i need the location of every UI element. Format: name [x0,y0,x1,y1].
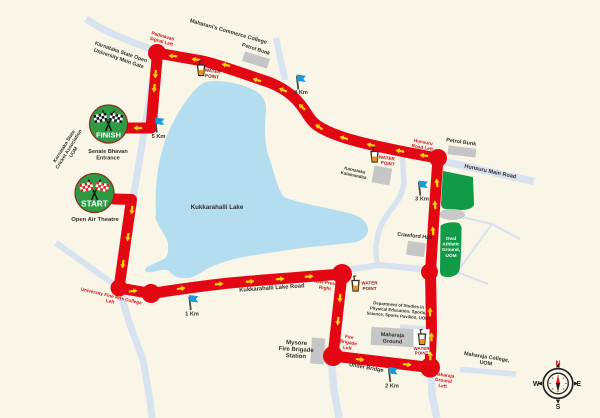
svg-text:FINISH: FINISH [96,131,121,140]
svg-text:2 Km: 2 Km [385,384,399,390]
svg-text:Senate Bhavan: Senate Bhavan [88,149,128,155]
svg-text:5 Km: 5 Km [152,134,166,140]
svg-text:Ground: Ground [383,338,403,345]
svg-text:Ground,: Ground, [442,247,460,252]
svg-text:START: START [81,200,108,209]
svg-text:1 Km: 1 Km [185,312,199,318]
svg-text:Open Air Theatre: Open Air Theatre [71,217,119,223]
svg-text:WATER: WATER [361,281,378,286]
svg-text:Athletic: Athletic [442,242,460,247]
svg-text:N: N [555,361,560,368]
svg-text:POINT: POINT [415,351,429,356]
svg-text:W: W [533,381,540,388]
svg-text:Entrance: Entrance [96,156,120,162]
svg-text:UOM: UOM [446,253,457,258]
svg-text:4 Km: 4 Km [294,90,308,96]
svg-text:S: S [556,404,561,411]
svg-text:E: E [577,381,582,388]
svg-text:Kukkarahalli Lake: Kukkarahalli Lake [191,204,244,211]
svg-text:Station: Station [286,353,307,360]
svg-text:Oval: Oval [446,236,456,241]
svg-text:POINT: POINT [362,286,376,291]
svg-text:3 Km: 3 Km [415,197,429,203]
